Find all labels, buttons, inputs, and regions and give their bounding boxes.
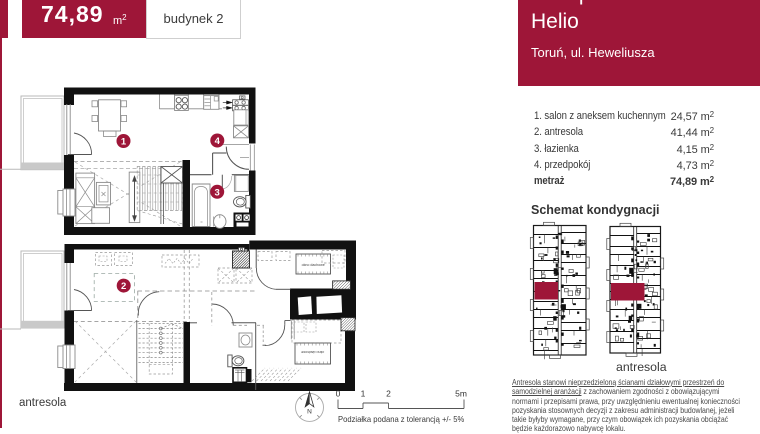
svg-text:N: N bbox=[307, 409, 312, 416]
svg-text:okno dachowe: okno dachowe bbox=[302, 263, 325, 267]
svg-text:1: 1 bbox=[361, 389, 366, 399]
svg-text:3: 3 bbox=[215, 187, 220, 198]
svg-text:2: 2 bbox=[386, 389, 391, 399]
svg-text:0: 0 bbox=[336, 389, 341, 399]
svg-text:4: 4 bbox=[215, 136, 221, 147]
svg-text:5m: 5m bbox=[455, 389, 467, 399]
svg-text:2: 2 bbox=[121, 281, 126, 292]
svg-text:1: 1 bbox=[121, 137, 127, 148]
svg-text:okno dachowe: okno dachowe bbox=[301, 350, 324, 354]
